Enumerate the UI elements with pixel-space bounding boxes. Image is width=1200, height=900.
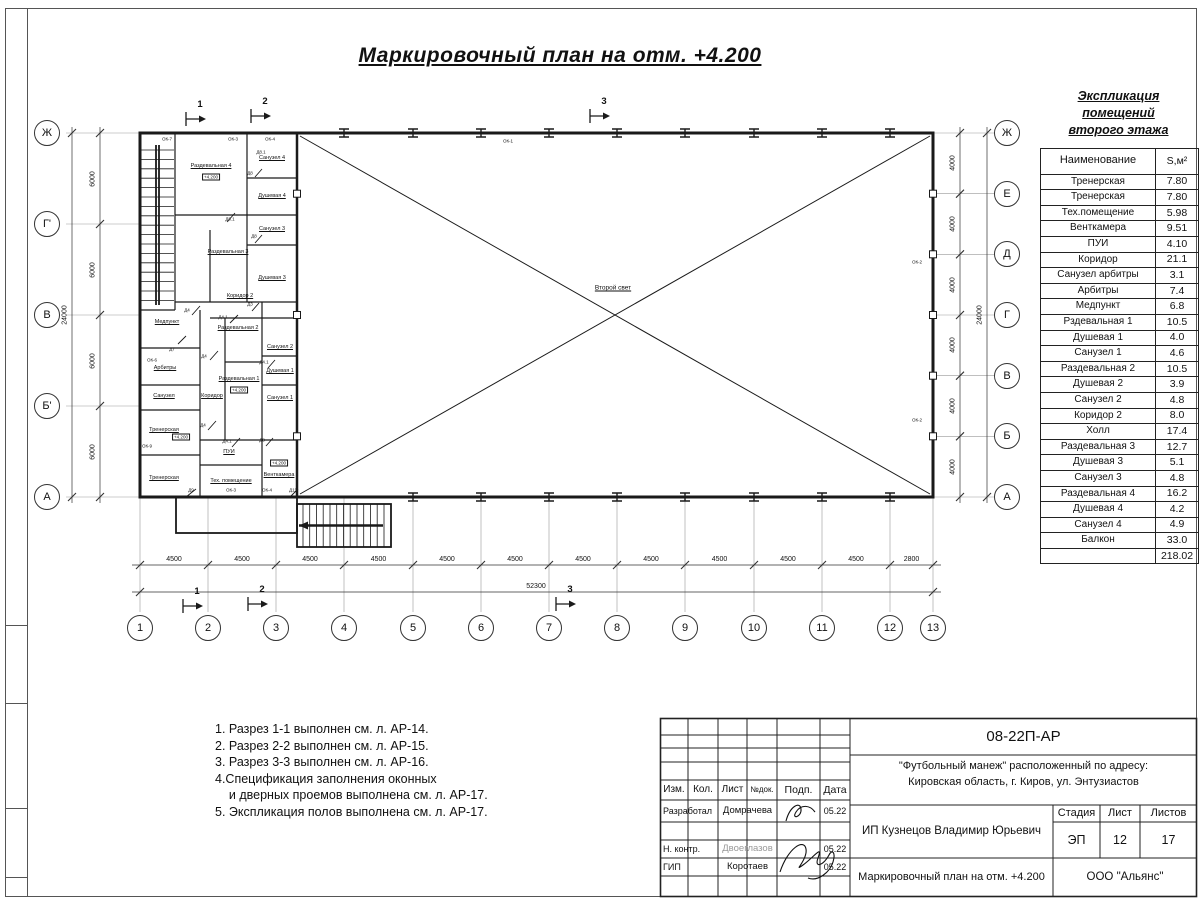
dim-label: 6000 (90, 171, 97, 187)
room-area-cell: 3.9 (1156, 377, 1199, 393)
sheet-title: Маркировочный план на отм. +4.200 (359, 44, 762, 68)
room-label: Санузел 3 (259, 226, 285, 232)
stamp-col-izm: Изм. (660, 780, 688, 800)
explication-row: Медпункт6.8 (1041, 299, 1199, 315)
opening-tag: Д9 (188, 488, 194, 493)
section-number: 2 (259, 584, 264, 595)
dim-label: 4500 (507, 556, 523, 563)
grid-bubble: В (994, 363, 1020, 389)
section-number: 3 (567, 584, 572, 595)
room-name-cell: Санузел 2 (1041, 392, 1156, 408)
stamp-sheets-label: Листов (1140, 805, 1197, 822)
grid-bubble: 4 (331, 615, 357, 641)
room-area-cell: 3.1 (1156, 268, 1199, 284)
opening-tag: Д8 (251, 234, 257, 239)
dim-label: 4500 (439, 556, 455, 563)
room-name-cell: Раздевальная 3 (1041, 439, 1156, 455)
grid-bubble: 10 (741, 615, 767, 641)
dim-label: 4500 (643, 556, 659, 563)
room-name-cell: Санузел арбитры (1041, 268, 1156, 284)
dim-label: 4000 (950, 459, 957, 475)
room-name-cell: Санузел 1 (1041, 346, 1156, 362)
opening-tag: Д4.1 (222, 439, 231, 444)
room-name-cell: Балкон (1041, 533, 1156, 549)
room-area-cell: 4.2 (1156, 502, 1199, 518)
stamp-date-developed: 05.22 (820, 800, 850, 822)
room-area-cell: 5.98 (1156, 205, 1199, 221)
dim-label: 4000 (950, 277, 957, 293)
dim-total-label: 24000 (62, 305, 69, 324)
stamp-client: ИП Кузнецов Владимир Юрьевич (850, 805, 1053, 858)
explication-row: Тренерская7.80 (1041, 174, 1199, 190)
opening-tag: Д4 (200, 423, 206, 428)
stamp-sheet-value: 12 (1100, 822, 1140, 858)
room-name-cell: ПУИ (1041, 237, 1156, 253)
dim-label: 6000 (90, 353, 97, 369)
explication-row: Коридор 28.0 (1041, 408, 1199, 424)
explication-total-row: 218.02 (1041, 548, 1199, 564)
room-area-cell: 4.8 (1156, 392, 1199, 408)
opening-tag: ОК-2 (912, 418, 922, 423)
opening-tag: Д4 (201, 354, 207, 359)
room-label: Медпункт (155, 319, 180, 325)
dim-label: 6000 (90, 444, 97, 460)
grid-bubble: Б (994, 423, 1020, 449)
grid-bubble: 1 (127, 615, 153, 641)
grid-bubble: 11 (809, 615, 835, 641)
room-name-cell: Санузел 4 (1041, 517, 1156, 533)
dim-label: 4500 (780, 556, 796, 563)
room-area-cell: 6.8 (1156, 299, 1199, 315)
stamp-name-gip: Коротаев (718, 858, 777, 876)
dim-label: 2800 (904, 556, 920, 563)
total-empty-cell (1041, 548, 1156, 564)
note-line: 2. Разрез 2-2 выполнен см. л. АР-15. (215, 739, 429, 753)
dim-label: 6000 (90, 262, 97, 278)
elevation-mark: +4.200 (270, 460, 288, 467)
grid-bubble: 2 (195, 615, 221, 641)
opening-tag: Д8 (247, 171, 253, 176)
room-name-cell: Медпункт (1041, 299, 1156, 315)
grid-bubble: Г (994, 302, 1020, 328)
room-area-cell: 16.2 (1156, 486, 1199, 502)
room-name-cell: Холл (1041, 424, 1156, 440)
room-area-cell: 4.6 (1156, 346, 1199, 362)
grid-bubble: 7 (536, 615, 562, 641)
explication-title: Экспликация помещений (1040, 88, 1197, 122)
stamp-sheet-title: Маркировочный план на отм. +4.200 (850, 858, 1053, 897)
stamp-company: ООО "Альянс" (1053, 858, 1197, 897)
opening-tag: Д11 (289, 488, 297, 493)
room-label: Раздевальная 4 (191, 163, 232, 169)
stamp-sheets-value: 17 (1140, 822, 1197, 858)
opening-tag: ОК-2 (912, 260, 922, 265)
stamp-stage-value: ЭП (1053, 822, 1100, 858)
room-area-cell: 4.8 (1156, 470, 1199, 486)
dim-label: 4500 (575, 556, 591, 563)
dim-label: 4000 (950, 216, 957, 232)
room-name-cell: Арбитры (1041, 283, 1156, 299)
drawing-sheet: Раздевальная 4Санузел 4Душевая 4Санузел … (0, 0, 1200, 900)
dim-total-label: 24000 (977, 305, 984, 324)
room-label: Тех. помещение (210, 478, 251, 484)
explication-row: Санузел 44.9 (1041, 517, 1199, 533)
room-area-cell: 8.0 (1156, 408, 1199, 424)
room-label: ПУИ (223, 449, 234, 455)
room-name-cell: Раздевальная 4 (1041, 486, 1156, 502)
total-area-cell: 218.02 (1156, 548, 1199, 564)
stamp-col-data: Дата (820, 780, 850, 800)
room-name-cell: Душевая 1 (1041, 330, 1156, 346)
opening-tag: Д4.1 (218, 315, 227, 320)
dim-label: 4000 (950, 338, 957, 354)
explication-row: Санузел 24.8 (1041, 392, 1199, 408)
grid-bubble: 9 (672, 615, 698, 641)
room-area-cell: 17.4 (1156, 424, 1199, 440)
room-label: Тренерская (149, 475, 179, 481)
stamp-role-ncontrol: Н. контр. (660, 840, 718, 858)
explication-row: Душевая 23.9 (1041, 377, 1199, 393)
explication-row: Душевая 35.1 (1041, 455, 1199, 471)
room-area-cell: 12.7 (1156, 439, 1199, 455)
grid-bubble: В (34, 302, 60, 328)
explication-row: Рздевальная 110.5 (1041, 314, 1199, 330)
room-label: Раздевальная 3 (208, 249, 249, 255)
stamp-sheet-label: Лист (1100, 805, 1140, 822)
explication-row: ПУИ4.10 (1041, 237, 1199, 253)
opening-tag: Д8 (259, 438, 265, 443)
stamp-col-podp: Подп. (777, 780, 820, 800)
explication-row: Душевая 14.0 (1041, 330, 1199, 346)
stamp-col-ndok: №док. (747, 780, 777, 800)
stamp-role-gip: ГИП (660, 858, 718, 876)
grid-bubble: 12 (877, 615, 903, 641)
stamp-role-developed: Разработал (660, 800, 718, 822)
grid-bubble: А (34, 484, 60, 510)
explication-row: Раздевальная 312.7 (1041, 439, 1199, 455)
room-name-cell: Душевая 4 (1041, 502, 1156, 518)
explication-table: Наименование S,м² Тренерская7.80Тренерск… (1040, 148, 1199, 565)
stamp-name-ncontrol: Двоеглазов (718, 840, 777, 858)
room-name-cell: Санузел 3 (1041, 470, 1156, 486)
grid-bubble: 13 (920, 615, 946, 641)
note-line: и дверных проемов выполнена см. л. АР-17… (215, 788, 488, 802)
section-number: 2 (262, 96, 267, 107)
room-area-cell: 7.80 (1156, 190, 1199, 206)
room-label: Арбитры (154, 365, 176, 371)
explication-row: Душевая 44.2 (1041, 502, 1199, 518)
room-area-cell: 7.4 (1156, 283, 1199, 299)
room-label: Душевая 4 (258, 193, 286, 199)
room-name-cell: Рздевальная 1 (1041, 314, 1156, 330)
grid-bubble: Ж (994, 120, 1020, 146)
room-label: Санузел 4 (259, 155, 285, 161)
room-area-cell: 4.0 (1156, 330, 1199, 346)
dim-label: 4000 (950, 398, 957, 414)
room-name-cell: Душевая 3 (1041, 455, 1156, 471)
explication-row: Тренерская7.80 (1041, 190, 1199, 206)
dim-total-label: 52300 (526, 583, 545, 590)
explication-row: Санузел 14.6 (1041, 346, 1199, 362)
explication-header-row: Наименование S,м² (1041, 148, 1199, 174)
stamp-stage-label: Стадия (1053, 805, 1100, 822)
dim-label: 4500 (712, 556, 728, 563)
room-label: Раздевальная 1 (219, 376, 260, 382)
opening-tag: Д7 (169, 347, 175, 352)
grid-bubble: Е (994, 181, 1020, 207)
room-label: Душевая 1 (266, 368, 294, 374)
grid-bubble: Г' (34, 211, 60, 237)
room-area-cell: 10.5 (1156, 361, 1199, 377)
explication-row: Санузел арбитры3.1 (1041, 268, 1199, 284)
explication-row: Коридор21.1 (1041, 252, 1199, 268)
explication-row: Раздевальная 416.2 (1041, 486, 1199, 502)
opening-tag: ОК-3 (226, 488, 236, 493)
room-label: Венткамера (264, 472, 295, 478)
room-label: Санузел 2 (267, 344, 293, 350)
room-name-cell: Душевая 2 (1041, 377, 1156, 393)
room-label: Санузел 1 (267, 395, 293, 401)
room-name-cell: Коридор 2 (1041, 408, 1156, 424)
grid-bubble: 3 (263, 615, 289, 641)
elevation-mark: +4.200 (202, 174, 220, 181)
room-area-cell: 4.9 (1156, 517, 1199, 533)
grid-bubble: Д (994, 241, 1020, 267)
grid-bubble: 5 (400, 615, 426, 641)
dim-label: 4000 (950, 156, 957, 172)
opening-tag: Д4 (184, 308, 190, 313)
room-label: Коридор 2 (227, 293, 253, 299)
explication-col-area: S,м² (1156, 148, 1199, 174)
section-number: 1 (197, 99, 202, 110)
room-name-cell: Коридор (1041, 252, 1156, 268)
stamp-date-ncontrol: 05.22 (820, 840, 850, 858)
opening-tag: ОК-6 (147, 358, 157, 363)
room-area-cell: 10.5 (1156, 314, 1199, 330)
note-line: 4.Спецификация заполнения оконных (215, 772, 437, 786)
room-area-cell: 33.0 (1156, 533, 1199, 549)
room-label: Санузел (153, 393, 174, 399)
dim-label: 4500 (166, 556, 182, 563)
explication-subtitle: второго этажа (1040, 122, 1197, 139)
room-name-cell: Тренерская (1041, 190, 1156, 206)
explication-row: Тех.помещение5.98 (1041, 205, 1199, 221)
room-name-cell: Тех.помещение (1041, 205, 1156, 221)
opening-tag: ОК-1 (503, 139, 513, 144)
room-name-cell: Венткамера (1041, 221, 1156, 237)
stamp-col-kol: Кол. (688, 780, 718, 800)
stamp-col-list: Лист (718, 780, 747, 800)
explication-row: Раздевальная 210.5 (1041, 361, 1199, 377)
opening-tag: Д8.1 (225, 217, 234, 222)
note-line: 1. Разрез 1-1 выполнен см. л. АР-14. (215, 722, 429, 736)
elevation-mark: +4.200 (172, 434, 190, 441)
explication-row: Венткамера9.51 (1041, 221, 1199, 237)
dim-label: 4500 (848, 556, 864, 563)
room-area-cell: 5.1 (1156, 455, 1199, 471)
dim-label: 4500 (371, 556, 387, 563)
room-area-cell: 21.1 (1156, 252, 1199, 268)
section-number: 1 (194, 586, 199, 597)
opening-tag: ОК-4 (265, 137, 275, 142)
room-label: Тренерская (149, 427, 179, 433)
grid-bubble: 6 (468, 615, 494, 641)
explication-col-name: Наименование (1041, 148, 1156, 174)
room-area-cell: 9.51 (1156, 221, 1199, 237)
opening-tag: ОК-3 (228, 137, 238, 142)
opening-tag: ОК-4 (262, 488, 272, 493)
note-line: 5. Экспликация полов выполнена см. л. АР… (215, 805, 488, 819)
room-area-cell: 4.10 (1156, 237, 1199, 253)
opening-tag: ОК-9 (142, 444, 152, 449)
grid-bubble: Ж (34, 120, 60, 146)
stamp-date-gip: 05.22 (820, 858, 850, 876)
opening-tag: ОК-7 (162, 137, 172, 142)
dim-label: 4500 (302, 556, 318, 563)
room-label: Душевая 3 (258, 275, 286, 281)
explication-row: Санузел 34.8 (1041, 470, 1199, 486)
opening-tag: Д8.1 (256, 150, 265, 155)
explication-row: Холл17.4 (1041, 424, 1199, 440)
room-label: Раздевальная 2 (218, 325, 259, 331)
stamp-project-line2: Кировская область, г. Киров, ул. Энтузиа… (850, 774, 1197, 792)
room-label: Коридор (201, 393, 223, 399)
stamp-doc-number: 08-22П-АР (850, 722, 1197, 752)
explication-row: Арбитры7.4 (1041, 283, 1199, 299)
grid-bubble: 8 (604, 615, 630, 641)
elevation-mark: +4.200 (230, 387, 248, 394)
room-name-cell: Раздевальная 2 (1041, 361, 1156, 377)
stamp-name-developed: Домрачева (718, 800, 777, 822)
dim-label: 4500 (234, 556, 250, 563)
grid-bubble: Б' (34, 393, 60, 419)
room-name-cell: Тренерская (1041, 174, 1156, 190)
hall-space-label: Второй свет (595, 285, 631, 292)
room-area-cell: 7.80 (1156, 174, 1199, 190)
grid-bubble: А (994, 484, 1020, 510)
explication-row: Балкон33.0 (1041, 533, 1199, 549)
explication-panel: Экспликация помещений второго этажа Наим… (1040, 88, 1197, 564)
opening-tag: Д4.1 (259, 360, 268, 365)
opening-tag: Д3 (247, 302, 253, 307)
section-number: 3 (601, 96, 606, 107)
note-line: 3. Разрез 3-3 выполнен см. л. АР-16. (215, 755, 429, 769)
